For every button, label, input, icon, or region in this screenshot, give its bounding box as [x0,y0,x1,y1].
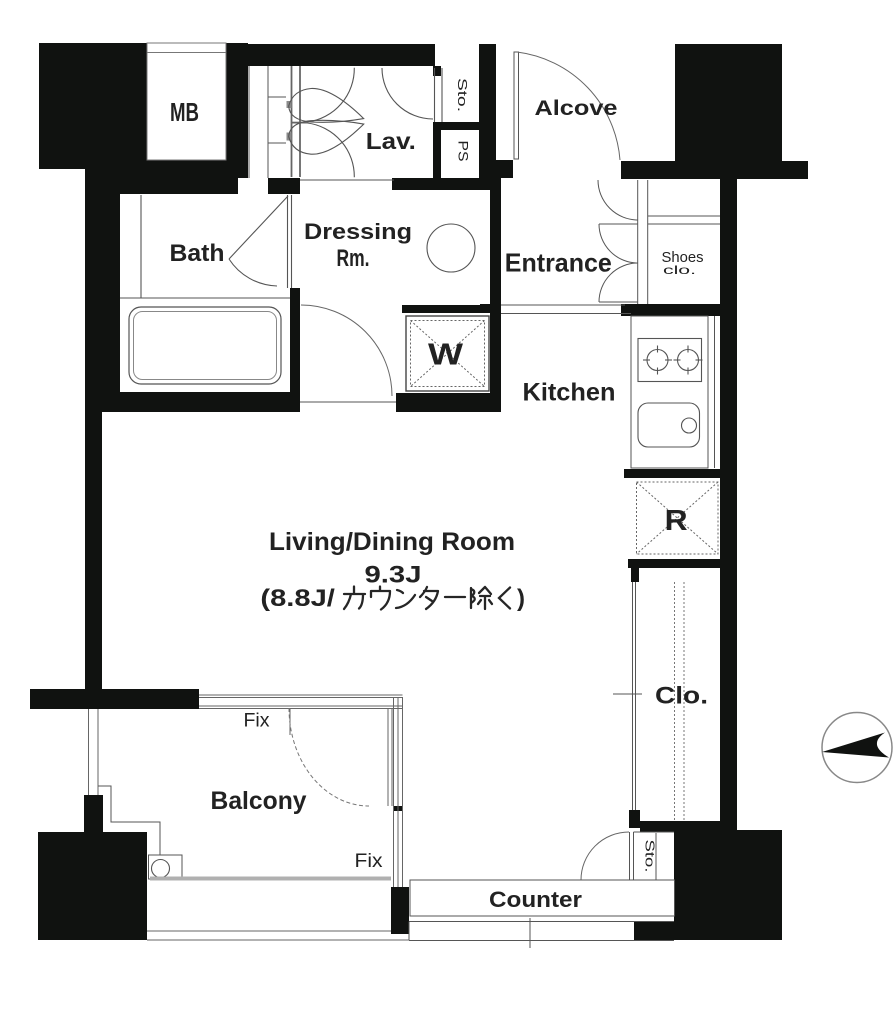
svg-text:Living/Dining Room: Living/Dining Room [269,528,515,556]
svg-text:(8.8J/: (8.8J/ [260,585,335,612]
svg-text:Sto.: Sto. [455,78,470,112]
svg-text:PS: PS [456,141,472,162]
svg-text:Entrance: Entrance [505,248,612,278]
svg-text:): ) [517,585,525,612]
svg-text:Kitchen: Kitchen [523,379,616,407]
svg-text:Alcove: Alcove [535,97,618,120]
svg-text:clo.: clo. [663,263,696,277]
svg-text:Sto.: Sto. [643,840,657,873]
svg-text:W: W [428,337,464,372]
svg-text:MB: MB [170,97,199,127]
svg-text:Dressing: Dressing [304,219,412,244]
svg-text:Counter: Counter [489,887,582,912]
svg-text:Fix: Fix [355,851,384,872]
svg-text:Clo.: Clo. [655,682,708,709]
svg-text:Bath: Bath [170,240,225,267]
svg-text:Balcony: Balcony [211,787,307,815]
svg-text:Fix: Fix [244,711,271,732]
svg-text:Rm.: Rm. [337,245,370,272]
svg-text:Lav.: Lav. [366,128,416,154]
svg-text:9.3J: 9.3J [365,561,422,588]
svg-text:R: R [665,505,688,537]
